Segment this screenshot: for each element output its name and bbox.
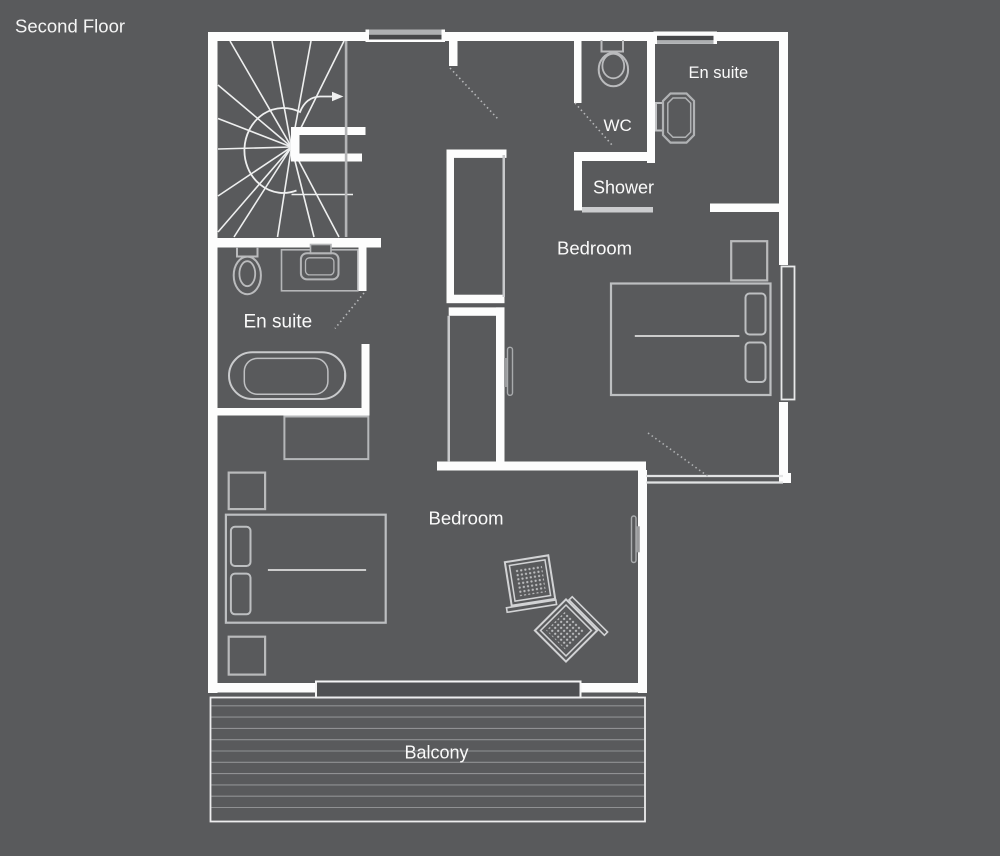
- svg-text:Bedroom: Bedroom: [557, 238, 632, 259]
- svg-text:Balcony: Balcony: [405, 743, 469, 763]
- svg-text:Bedroom: Bedroom: [429, 508, 504, 529]
- svg-text:Shower: Shower: [593, 178, 654, 198]
- svg-text:Second Floor: Second Floor: [15, 16, 125, 37]
- svg-text:En suite: En suite: [689, 64, 749, 82]
- svg-text:WC: WC: [604, 116, 632, 135]
- svg-text:En suite: En suite: [244, 312, 313, 333]
